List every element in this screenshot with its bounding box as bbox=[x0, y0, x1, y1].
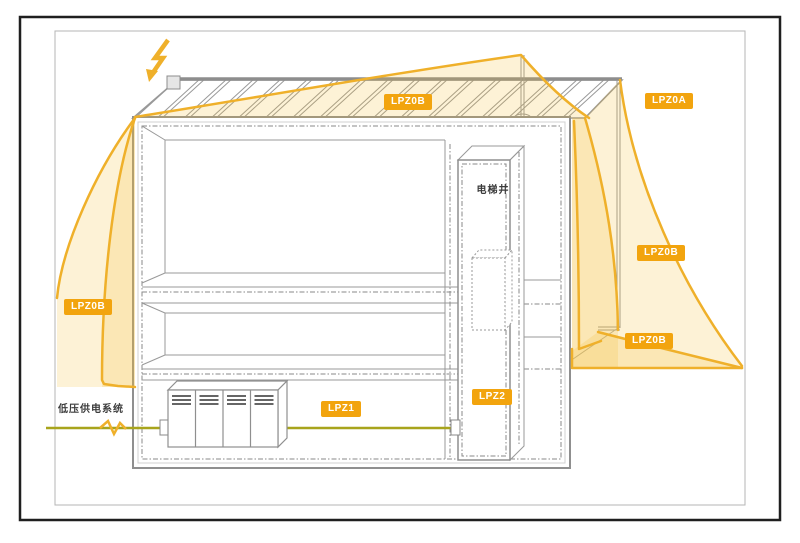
roof-edge-tab bbox=[167, 76, 180, 89]
equipment-cabinets bbox=[168, 381, 287, 447]
zone-badge-lpz0b-right-upper: LPZ0B bbox=[637, 245, 685, 261]
diagram-canvas: LPZ0B LPZ0A LPZ0B LPZ0B LPZ0B LPZ1 LPZ2 … bbox=[0, 0, 800, 543]
cable-connector-box bbox=[451, 420, 460, 435]
zone-badge-lpz0b-roof: LPZ0B bbox=[384, 94, 432, 110]
building-diagram bbox=[0, 0, 800, 543]
zone-badge-lpz0b-left: LPZ0B bbox=[64, 299, 112, 315]
zone-badge-lpz0b-right-lower: LPZ0B bbox=[625, 333, 673, 349]
zone-badge-lpz2: LPZ2 bbox=[472, 389, 512, 405]
lv-power-system-label: 低压供电系统 bbox=[58, 405, 124, 415]
elevator-shaft-label: 电梯井 bbox=[471, 186, 515, 196]
zone-badge-lpz0a-right: LPZ0A bbox=[645, 93, 693, 109]
zone-badge-lpz1: LPZ1 bbox=[321, 401, 361, 417]
elevator-car bbox=[472, 250, 512, 330]
